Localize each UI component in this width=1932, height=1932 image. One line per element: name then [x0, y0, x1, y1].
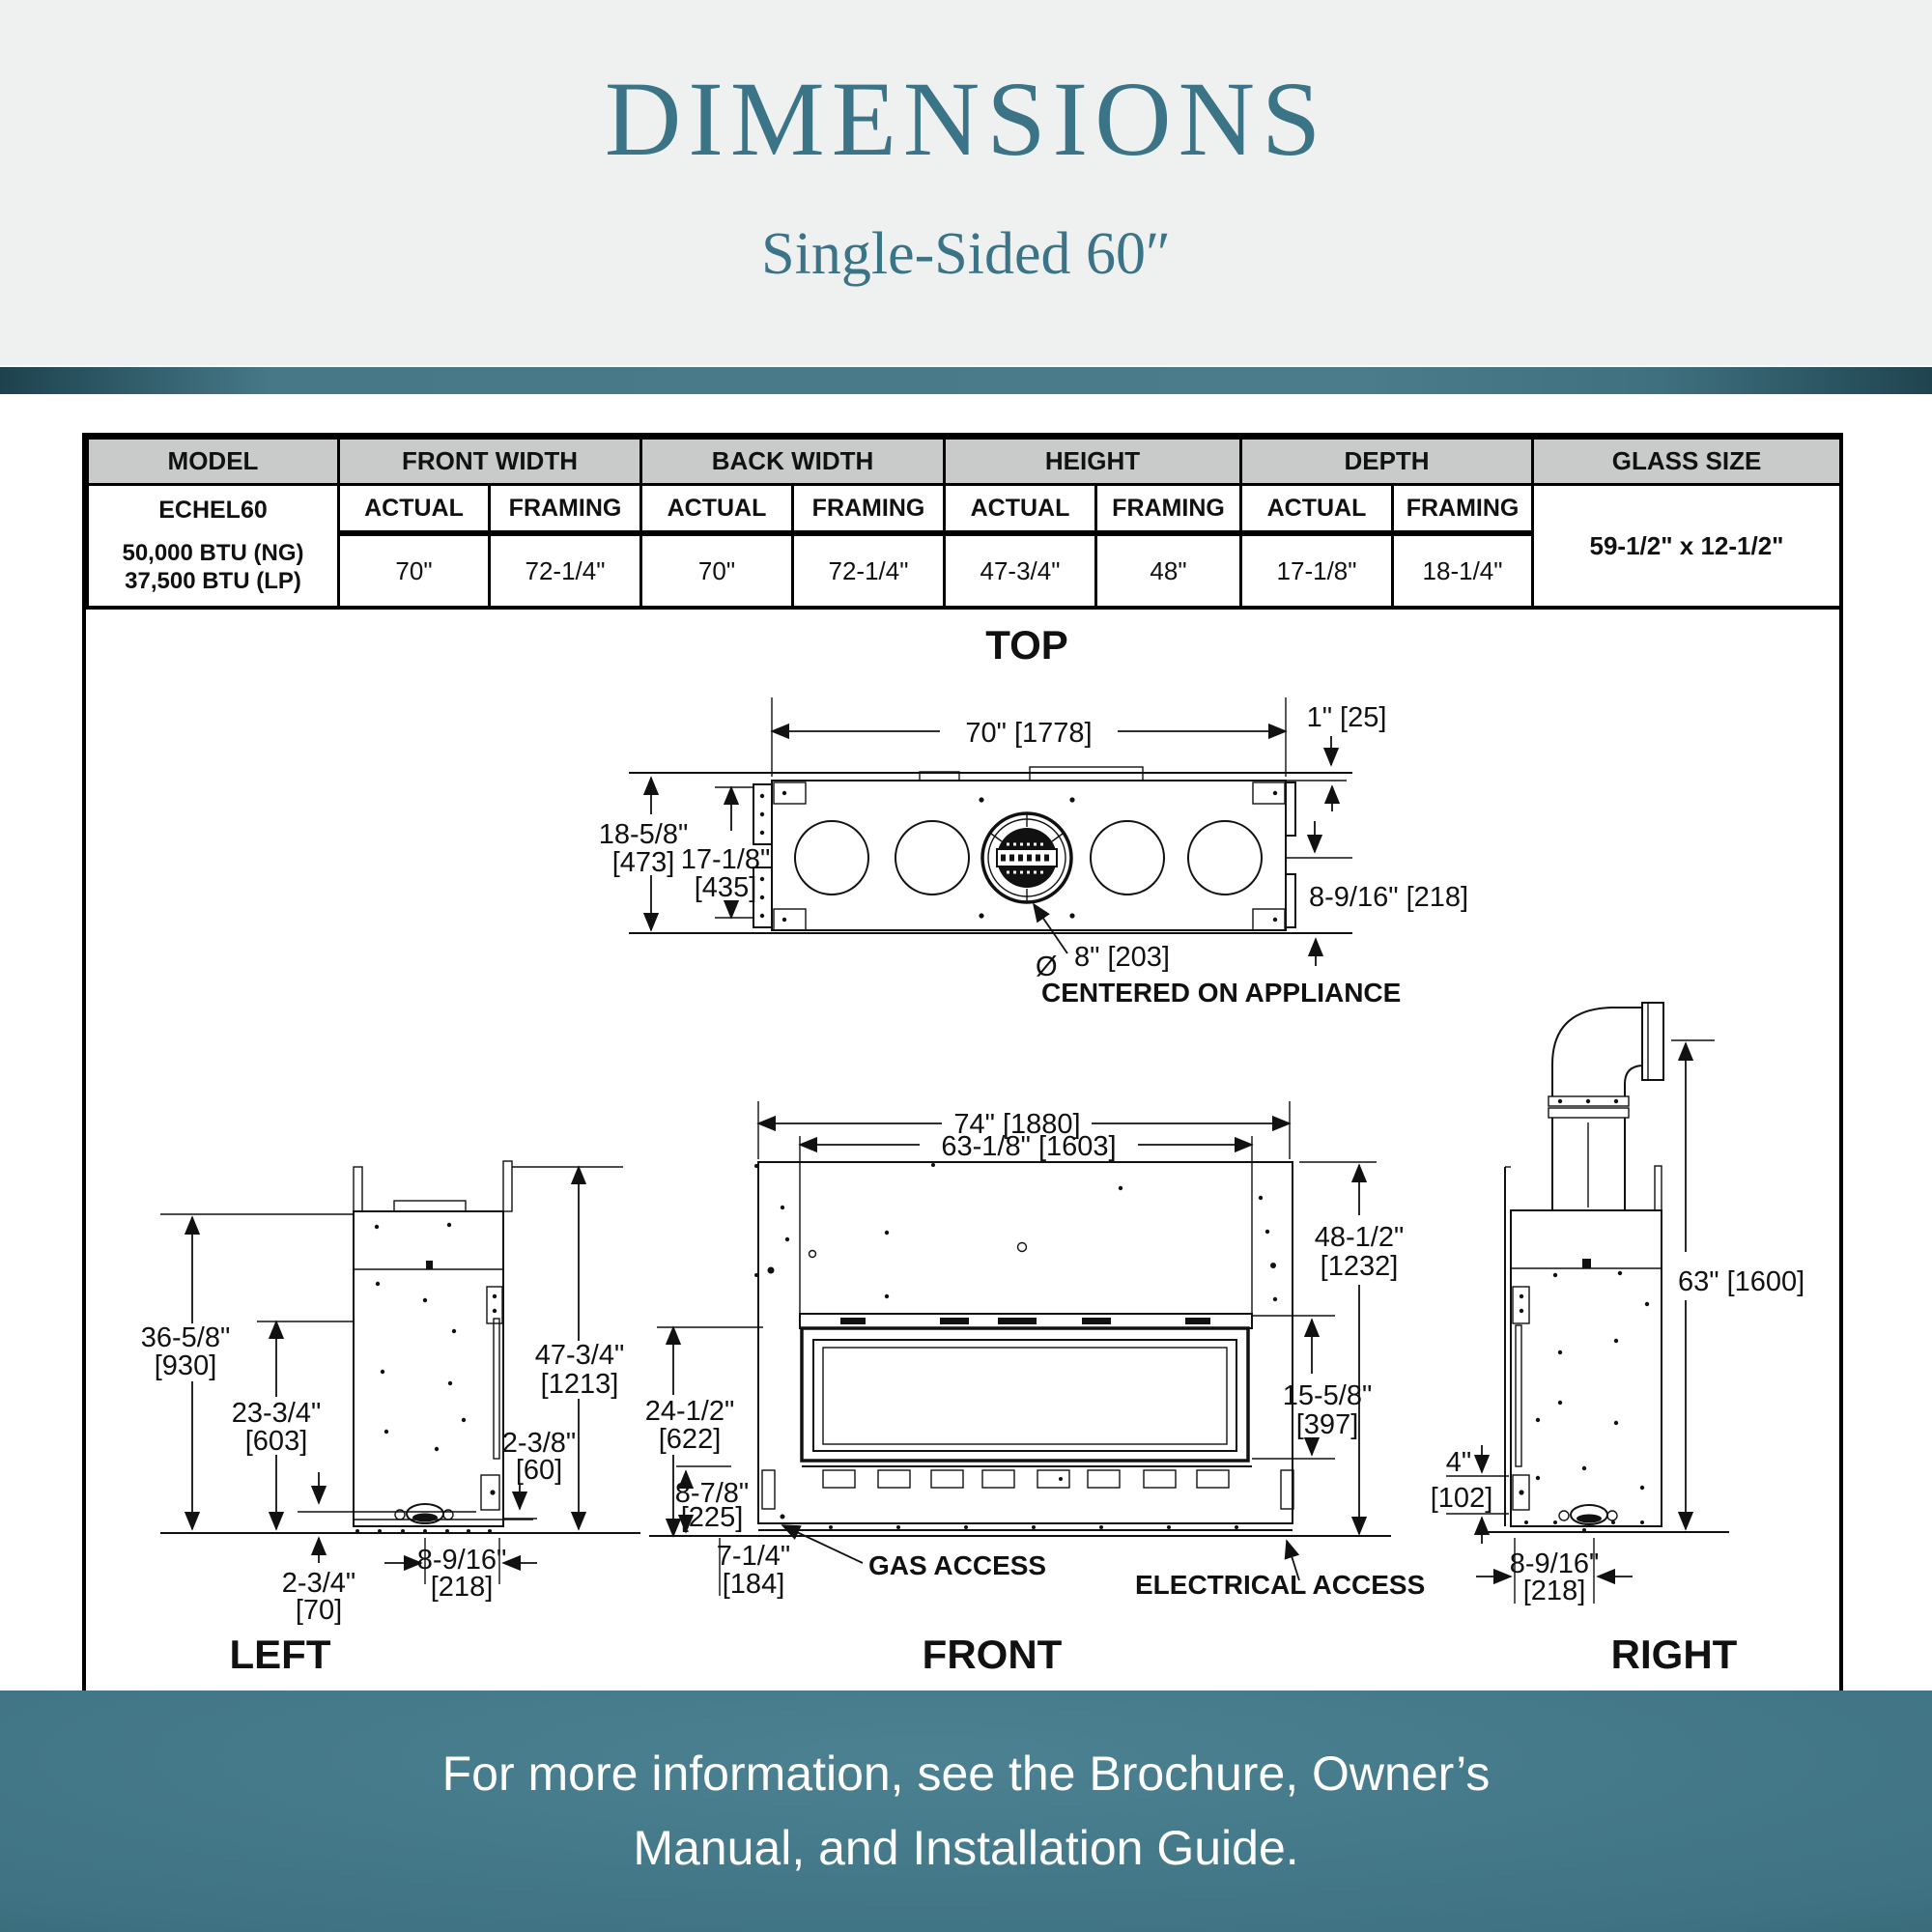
footer-line-1: For more information, see the Brochure, …: [442, 1737, 1491, 1811]
left-view-title: LEFT: [230, 1632, 331, 1677]
right-dim-vb: [102]: [1431, 1483, 1493, 1514]
right-dim-db: [218]: [1523, 1576, 1586, 1606]
top-dim-depth-2: [435]: [695, 872, 757, 903]
front-dim-gb: [397]: [1296, 1409, 1359, 1440]
top-dim-width-label: 70" [1778]: [965, 718, 1092, 749]
right-view-drawing: RIGHT: [1431, 1003, 1805, 1677]
top-vent-diameter-label: 8" [203]: [1074, 942, 1170, 973]
front-dim-fa: 7-1/4": [717, 1541, 790, 1572]
front-dim-h1a: 48-1/2": [1315, 1222, 1405, 1253]
top-dim-depth-1: 17-1/8": [681, 844, 771, 875]
left-dim-db: [218]: [431, 1572, 494, 1603]
front-gas-access-label: GAS ACCESS: [868, 1550, 1046, 1580]
right-dim-height: 63" [1600]: [1678, 1266, 1804, 1297]
front-dim-h2b: [622]: [659, 1424, 722, 1455]
front-dim-w2: 63-1/8" [1603]: [941, 1131, 1116, 1162]
right-dim-va: 4": [1446, 1447, 1471, 1478]
left-dim-h2b: [603]: [245, 1426, 308, 1457]
technical-drawings: TOP: [0, 0, 1932, 1932]
front-electrical-access-label: ELECTRICAL ACCESS: [1135, 1570, 1425, 1600]
front-dim-bb: [225]: [681, 1502, 744, 1533]
top-view-drawing: TOP: [599, 622, 1468, 1008]
footer-band: For more information, see the Brochure, …: [0, 1690, 1932, 1932]
top-vent-note: CENTERED ON APPLIANCE: [1041, 978, 1401, 1008]
top-dim-depth-outer-1: 18-5/8": [599, 819, 689, 850]
left-dim-h3a: 47-3/4": [535, 1340, 625, 1371]
left-dim-o1b: [60]: [516, 1455, 562, 1486]
front-view-title: FRONT: [923, 1632, 1063, 1677]
front-dim-h2a: 24-1/2": [645, 1396, 735, 1427]
right-view-title: RIGHT: [1611, 1632, 1738, 1677]
footer-line-2: Manual, and Installation Guide.: [633, 1811, 1298, 1886]
top-dim-offset-label: 1" [25]: [1307, 702, 1387, 733]
left-dim-h2a: 23-3/4": [232, 1398, 322, 1429]
dimension-sheet: DIMENSIONS Single-Sided 60″ MODEL FRONT …: [0, 0, 1932, 1932]
left-dim-o2b: [70]: [296, 1595, 342, 1626]
front-view-drawing: FRONT: [645, 1101, 1426, 1677]
left-dim-h1b: [930]: [155, 1350, 217, 1381]
top-dim-half-depth: 8-9/16" [218]: [1309, 882, 1468, 913]
left-dim-h1a: 36-5/8": [141, 1322, 231, 1353]
top-view-title: TOP: [985, 622, 1068, 668]
front-dim-ga: 15-5/8": [1283, 1380, 1373, 1411]
front-dim-h1b: [1232]: [1321, 1251, 1399, 1282]
left-dim-h3b: [1213]: [541, 1369, 619, 1400]
front-dim-fb: [184]: [723, 1569, 785, 1600]
left-view-drawing: LEFT: [141, 1161, 640, 1677]
top-dim-depth-outer-2: [473]: [612, 847, 675, 878]
